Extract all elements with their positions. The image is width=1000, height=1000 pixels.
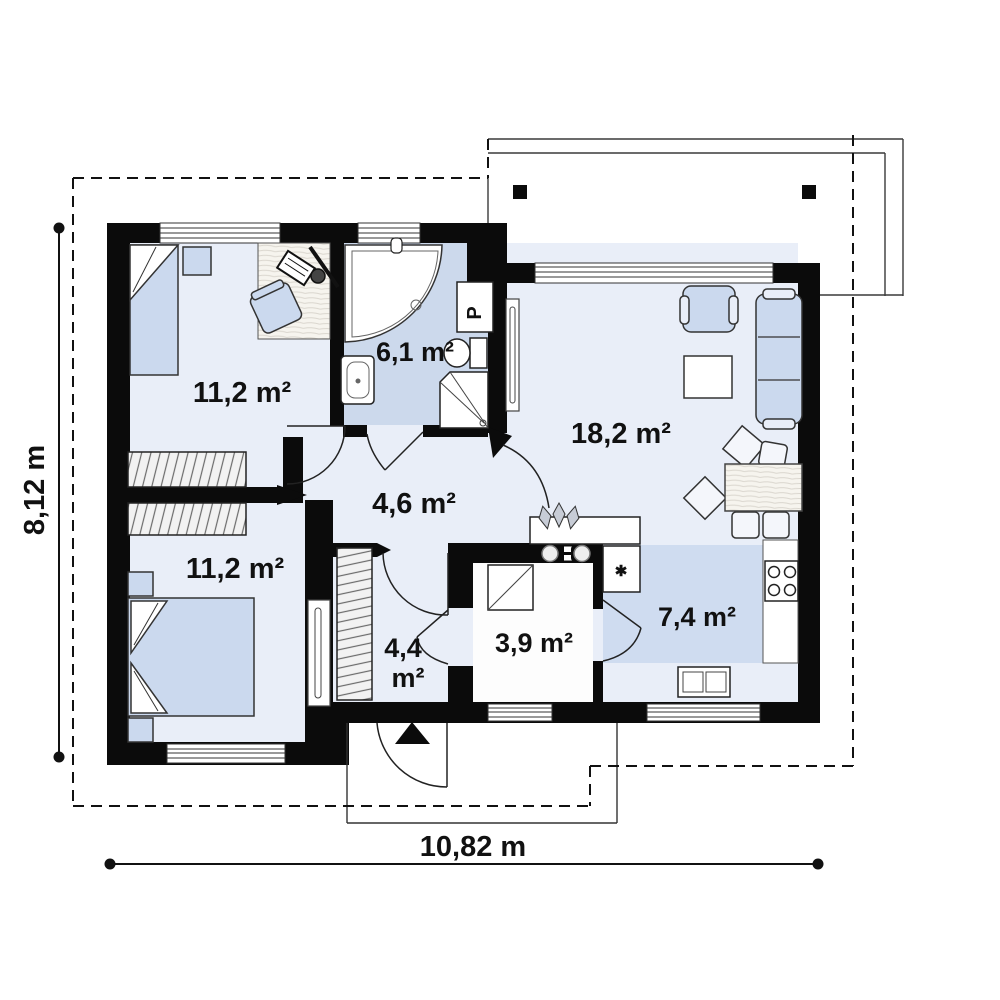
porch-floor	[348, 723, 617, 823]
chair	[763, 512, 789, 538]
label-entrance-area-1: 4,4	[384, 633, 422, 663]
armchair	[680, 286, 738, 332]
label-bathroom-area: 6,1 m²	[376, 337, 454, 367]
label-storage-area: 3,9 m²	[495, 628, 573, 658]
wardrobe-hall	[337, 548, 372, 700]
floor-plan-page: 11,2 m² 6,1 m² 18,2 m² 4,6 m² 11,2 m² 4,…	[0, 0, 1000, 1000]
label-bedroom1-area: 11,2 m²	[193, 377, 292, 409]
pocket-door-slit	[315, 608, 321, 698]
sofa	[756, 289, 802, 429]
label-bedroom2-area: 11,2 m²	[186, 553, 285, 585]
stove	[765, 561, 798, 601]
window-bedroom1-top	[160, 223, 280, 243]
wall-storage-right-b	[593, 661, 603, 703]
window-living-sliding	[535, 263, 773, 283]
window-kitchen-bottom	[647, 704, 760, 721]
wall-bedrooms-divider	[130, 487, 277, 503]
chair	[732, 512, 759, 538]
dim-dot	[54, 752, 65, 763]
wall-bathroom-living	[488, 243, 507, 433]
dim-dot	[813, 859, 824, 870]
wall-storage-left-b	[448, 666, 473, 703]
label-width-dimension: 10,82 m	[420, 831, 526, 863]
base-cabinet	[678, 667, 730, 697]
dining-table	[725, 464, 802, 511]
label-height-dimension: 8,12 m	[19, 445, 51, 535]
radiator	[506, 299, 519, 411]
floor-plan-drawing: 11,2 m² 6,1 m² 18,2 m² 4,6 m² 11,2 m² 4,…	[0, 0, 1000, 1000]
wall-storage-left-a	[448, 563, 473, 608]
nightstand-bottom	[128, 718, 153, 742]
window-bathroom-top	[358, 223, 420, 243]
nightstand	[183, 247, 211, 275]
bathtub-tap	[391, 238, 402, 253]
dim-dot	[54, 223, 65, 234]
label-entrance-area-2: m²	[392, 663, 425, 693]
appliance-star-icon: ✱	[615, 563, 628, 580]
wardrobe-bedroom1	[128, 452, 246, 487]
dim-dot	[105, 859, 116, 870]
wall-storage-right-a	[593, 563, 603, 609]
window-bedroom2-bottom	[167, 744, 285, 763]
terrace-post-right	[802, 185, 816, 199]
corner-shower	[440, 372, 488, 428]
nightstand-top	[128, 572, 153, 596]
label-kitchen-area: 7,4 m²	[658, 602, 736, 632]
water-heater	[488, 565, 533, 610]
label-washing-machine: P	[464, 306, 486, 319]
washbasin	[341, 356, 374, 404]
desk-lamp	[311, 269, 325, 283]
wardrobe-bedroom2	[128, 503, 246, 535]
terrace-post-left	[513, 185, 527, 199]
wall-outer-left	[107, 223, 130, 765]
window-storage-bottom	[488, 704, 552, 721]
label-hall-area: 4,6 m²	[372, 488, 456, 520]
coffee-table	[684, 356, 732, 398]
wall-bathroom-bottom-l	[343, 425, 367, 437]
label-living-area: 18,2 m²	[571, 418, 671, 450]
